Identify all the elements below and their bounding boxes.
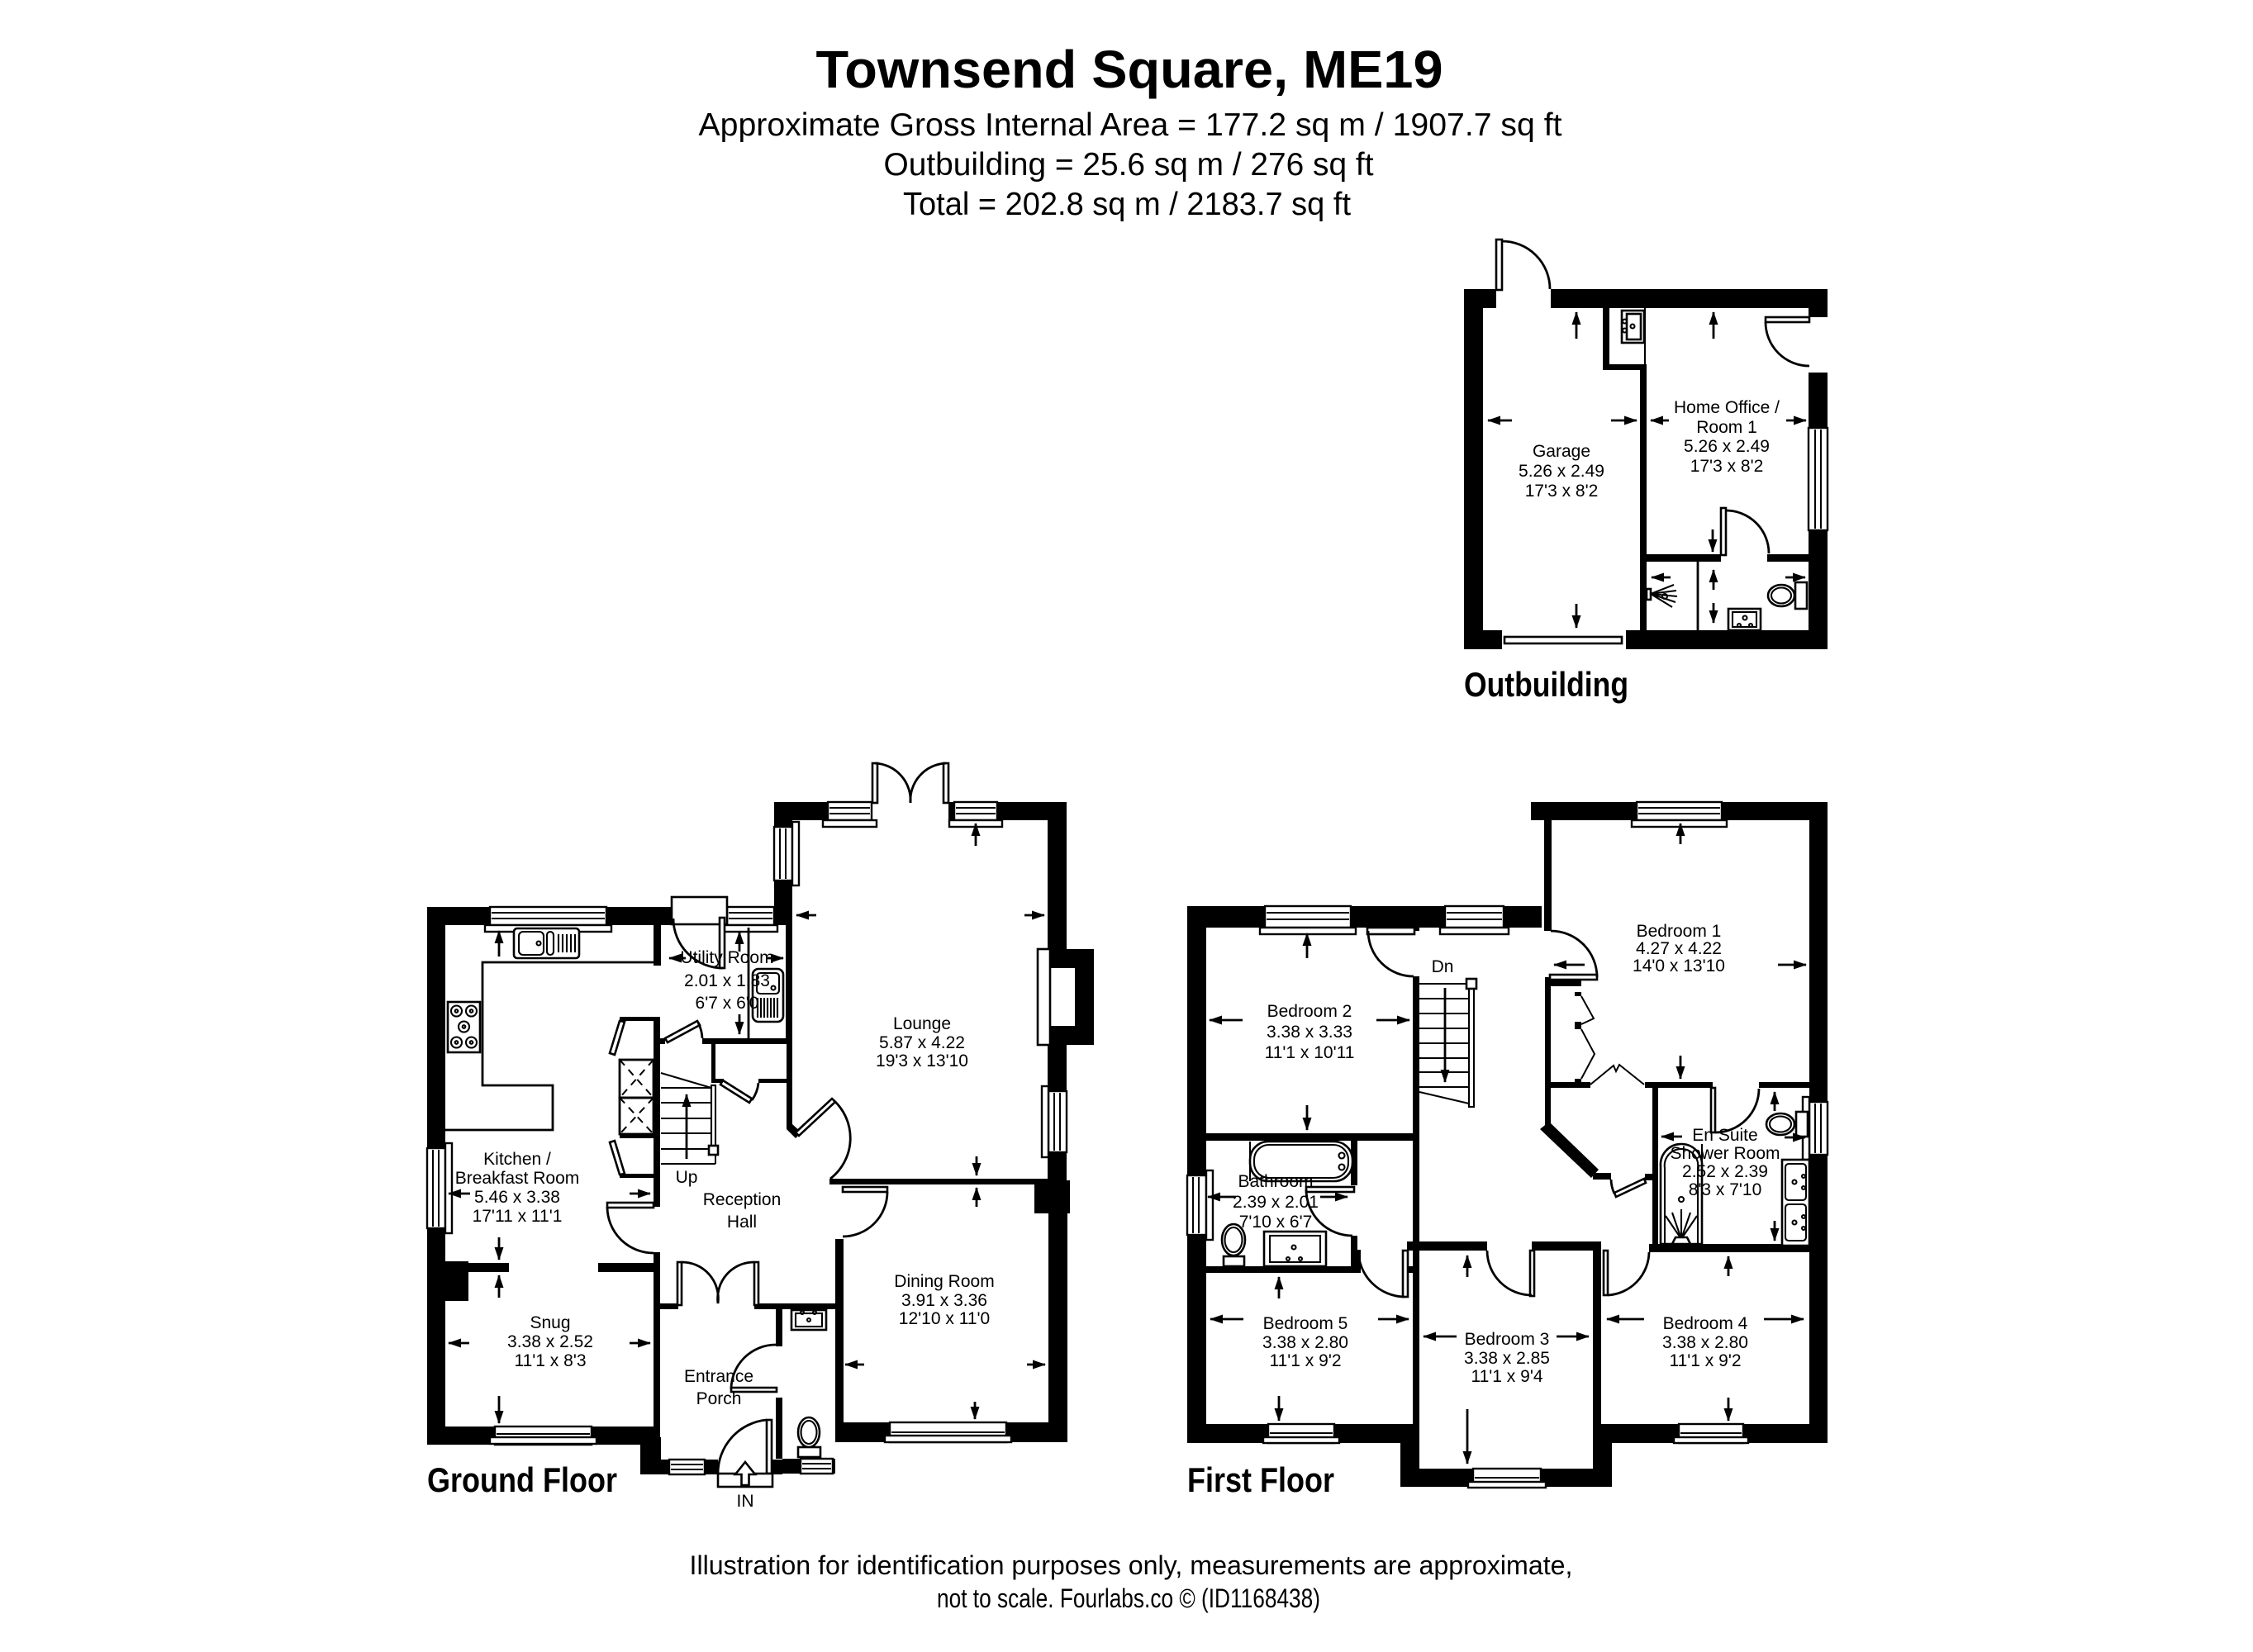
svg-text:5.46 x 3.38: 5.46 x 3.38: [474, 1188, 560, 1207]
svg-text:First Floor: First Floor: [1187, 1460, 1334, 1499]
svg-text:Outbuilding: Outbuilding: [1464, 665, 1628, 704]
svg-text:Outbuilding = 25.6 sq m / 276: Outbuilding = 25.6 sq m / 276 sq ft: [884, 147, 1374, 183]
svg-text:Shower Room: Shower Room: [1670, 1144, 1780, 1163]
svg-text:3.38 x 2.85: 3.38 x 2.85: [1464, 1349, 1550, 1368]
svg-text:Kitchen /: Kitchen /: [483, 1150, 551, 1169]
svg-text:17'11 x 11'1: 17'11 x 11'1: [473, 1207, 563, 1226]
svg-text:Lounge: Lounge: [893, 1014, 951, 1033]
svg-text:Garage: Garage: [1533, 442, 1590, 461]
svg-text:Utility Room: Utility Room: [680, 948, 773, 967]
svg-text:Bedroom 5: Bedroom 5: [1263, 1314, 1348, 1333]
svg-text:7'10 x 6'7: 7'10 x 6'7: [1239, 1213, 1313, 1232]
svg-text:not to scale. Fourlabs.co © (I: not to scale. Fourlabs.co © (ID1168438): [937, 1583, 1320, 1613]
svg-text:Home Office /: Home Office /: [1674, 398, 1780, 417]
svg-text:6'7 x 6'0: 6'7 x 6'0: [696, 994, 759, 1013]
svg-text:Bedroom 1: Bedroom 1: [1637, 922, 1722, 941]
svg-text:Up: Up: [676, 1168, 698, 1187]
svg-text:2.52 x 2.39: 2.52 x 2.39: [1682, 1162, 1768, 1181]
svg-text:IN: IN: [737, 1492, 754, 1511]
svg-text:5.26 x 2.49: 5.26 x 2.49: [1684, 437, 1770, 456]
svg-text:Total = 202.8 sq m / 2183.7 sq: Total = 202.8 sq m / 2183.7 sq ft: [903, 187, 1351, 222]
svg-text:3.38 x 3.33: 3.38 x 3.33: [1267, 1023, 1352, 1042]
svg-text:Bedroom 4: Bedroom 4: [1663, 1314, 1748, 1333]
svg-text:12'10 x 11'0: 12'10 x 11'0: [899, 1309, 990, 1328]
svg-text:Approximate Gross Internal Are: Approximate Gross Internal Area = 177.2 …: [699, 107, 1562, 143]
svg-text:5.26 x 2.49: 5.26 x 2.49: [1519, 462, 1604, 481]
svg-text:Dining Room: Dining Room: [894, 1272, 994, 1291]
svg-text:11'1 x 9'2: 11'1 x 9'2: [1269, 1351, 1341, 1370]
svg-text:Breakfast Room: Breakfast Room: [455, 1169, 580, 1188]
svg-text:Dn: Dn: [1432, 957, 1454, 976]
svg-text:11'1 x 10'11: 11'1 x 10'11: [1265, 1043, 1355, 1062]
svg-text:3.91 x 3.36: 3.91 x 3.36: [901, 1291, 987, 1310]
svg-text:5.87 x 4.22: 5.87 x 4.22: [879, 1033, 965, 1052]
svg-text:Ground Floor: Ground Floor: [427, 1460, 617, 1499]
svg-text:8'3 x 7'10: 8'3 x 7'10: [1689, 1180, 1762, 1199]
svg-text:11'1 x 8'3: 11'1 x 8'3: [514, 1351, 586, 1370]
svg-text:Townsend Square, ME19: Townsend Square, ME19: [816, 40, 1443, 99]
svg-text:2.39 x 2.01: 2.39 x 2.01: [1233, 1193, 1319, 1212]
svg-text:Bathroom: Bathroom: [1238, 1172, 1313, 1191]
svg-text:3.38 x 2.80: 3.38 x 2.80: [1262, 1333, 1348, 1352]
svg-text:11'1 x 9'2: 11'1 x 9'2: [1669, 1351, 1741, 1370]
svg-text:Illustration for identificatio: Illustration for identification purposes…: [690, 1550, 1573, 1580]
svg-text:3.38 x 2.52: 3.38 x 2.52: [507, 1332, 593, 1351]
svg-text:Room 1: Room 1: [1696, 418, 1757, 437]
svg-text:11'1 x 9'4: 11'1 x 9'4: [1471, 1367, 1542, 1386]
svg-text:4.27 x 4.22: 4.27 x 4.22: [1636, 939, 1722, 958]
svg-text:Entrance: Entrance: [684, 1367, 753, 1386]
svg-text:17'3 x 8'2: 17'3 x 8'2: [1690, 457, 1764, 476]
svg-text:En Suite: En Suite: [1692, 1126, 1757, 1145]
svg-text:Hall: Hall: [727, 1213, 757, 1232]
svg-text:3.38 x 2.80: 3.38 x 2.80: [1662, 1333, 1748, 1352]
svg-text:2.01 x 1.83: 2.01 x 1.83: [684, 971, 770, 990]
svg-text:Snug: Snug: [530, 1313, 570, 1332]
svg-text:Reception: Reception: [703, 1190, 782, 1209]
svg-text:17'3 x 8'2: 17'3 x 8'2: [1525, 482, 1599, 501]
svg-text:19'3 x 13'10: 19'3 x 13'10: [876, 1051, 968, 1070]
svg-text:Bedroom 3: Bedroom 3: [1465, 1330, 1550, 1349]
svg-text:14'0 x 13'10: 14'0 x 13'10: [1633, 957, 1725, 976]
svg-text:Porch: Porch: [696, 1389, 742, 1408]
svg-text:Bedroom 2: Bedroom 2: [1267, 1002, 1352, 1021]
